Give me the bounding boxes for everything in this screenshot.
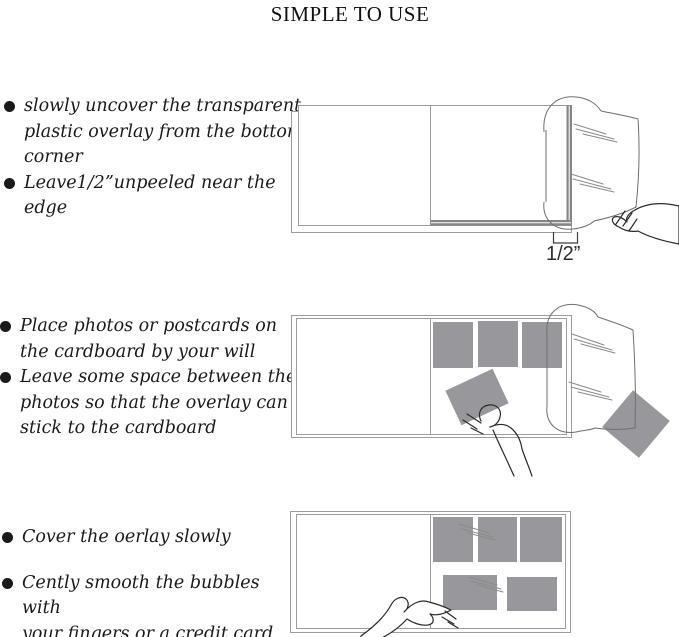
instruction-text: Leave1/2”unpeeled near the edge: [24, 171, 276, 222]
photo-thumbnails: [433, 321, 562, 368]
step3-instructions: Cover the oerlay slowly Cently smooth th…: [2, 525, 304, 637]
instruction-text: slowly uncover the transparent plastic o…: [24, 94, 304, 171]
bullet-icon: [0, 372, 11, 383]
instruction-text: Cently smooth the bubbles with your fing…: [22, 571, 304, 637]
step1-instructions: slowly uncover the transparent plastic o…: [4, 94, 306, 222]
page-title: SIMPLE TO USE: [271, 2, 430, 27]
step2-instructions: Place photos or postcards on the cardboa…: [0, 314, 302, 442]
bullet-icon: [0, 321, 11, 332]
bullet-icon: [2, 578, 13, 589]
half-inch-label: 1/2”: [546, 243, 580, 266]
instruction-item: Leave1/2”unpeeled near the edge: [4, 171, 306, 222]
instruction-item: Place photos or postcards on the cardboa…: [0, 314, 302, 365]
instruction-item: slowly uncover the transparent plastic o…: [4, 94, 306, 171]
instruction-item: Leave some space between the photos so t…: [0, 365, 302, 442]
album-smooth-illustration: [285, 490, 679, 637]
bullet-icon: [4, 178, 15, 189]
bullet-icon: [4, 101, 15, 112]
instruction-item: Cover the oerlay slowly: [2, 525, 304, 551]
bullet-icon: [2, 532, 13, 543]
overlay-shine-lines: [569, 334, 615, 400]
half-inch-bracket: [554, 232, 578, 243]
album-peel-illustration: [285, 90, 679, 280]
instruction-item: Cently smooth the bubbles with your fing…: [2, 571, 304, 637]
instruction-sheet: SIMPLE TO USE slowly uncover the transpa…: [0, 0, 679, 637]
album-place-photos-illustration: [285, 300, 679, 485]
instruction-text: Leave some space between the photos so t…: [20, 365, 296, 442]
instruction-text: Place photos or postcards on the cardboa…: [20, 314, 277, 365]
overlay-shine-lines: [571, 124, 617, 192]
hand-icon: [612, 204, 679, 244]
album-pages: [299, 106, 572, 226]
instruction-text: Cover the oerlay slowly: [22, 525, 231, 551]
